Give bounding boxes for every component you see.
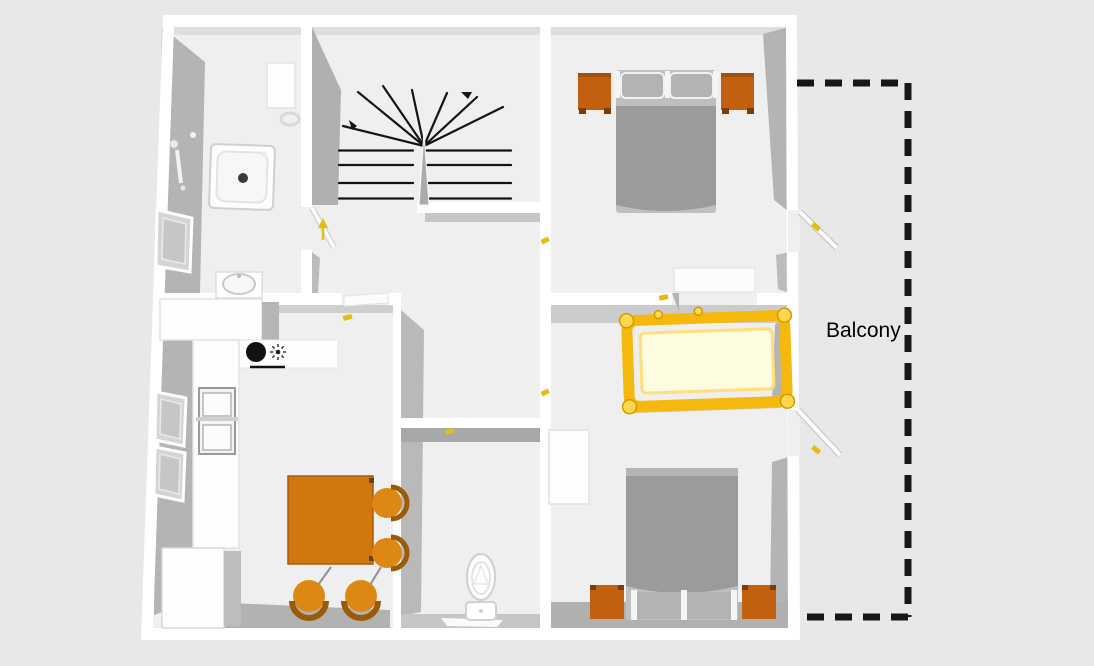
shower <box>209 144 275 210</box>
duvet-fold-highlight <box>616 100 716 106</box>
wc-top-wall-face <box>401 428 541 442</box>
balcony-door-opening-top <box>788 210 800 252</box>
bed-duvet <box>626 468 738 593</box>
wall-central-divider <box>540 27 551 629</box>
dining-chair-right-1 <box>372 487 407 519</box>
nightstand-body <box>590 585 624 619</box>
nightstand-leg <box>742 585 748 590</box>
cooktop <box>246 342 266 362</box>
balcony-label: Balcony <box>826 319 901 342</box>
pillow <box>670 73 713 98</box>
stair-landing-edge <box>417 202 540 213</box>
sink-basin <box>203 393 231 416</box>
chair-seat <box>372 488 402 518</box>
crib-post-knob <box>619 314 633 328</box>
shower-drain <box>238 173 248 183</box>
double-bed-top <box>615 70 718 213</box>
toilet <box>466 554 496 620</box>
nightstand-bottom-right <box>742 585 776 619</box>
bed-pillow-gap <box>681 590 687 620</box>
kitchen-upper-counter <box>160 299 262 340</box>
shower-hose-end <box>181 186 186 191</box>
wall-cabinet <box>267 63 295 108</box>
chair-seat <box>345 580 377 612</box>
nightstand-top-left <box>578 73 611 114</box>
nightstand-body <box>578 73 611 110</box>
pillow <box>637 592 681 619</box>
wall-bedroom-nursery-left <box>551 293 672 305</box>
nightstand-leg <box>579 108 586 114</box>
nightstand-leg <box>590 585 596 590</box>
kitchen-window-1 <box>155 392 186 446</box>
dining-chair-right-2 <box>372 537 407 569</box>
floorplan: Balcony <box>0 0 1094 666</box>
stair-landing-edge-face <box>425 213 540 222</box>
nightstand-top-right <box>721 73 754 114</box>
dining-table <box>288 476 373 564</box>
kitchen-sink <box>196 388 238 454</box>
nightstand-leg <box>770 585 776 590</box>
crib-finial <box>694 307 702 315</box>
toilet-flush-button <box>479 609 483 613</box>
fridge <box>162 548 241 628</box>
nightstand-bottom-left <box>590 585 624 619</box>
wall-kitchen-wc-divider <box>393 293 401 629</box>
nightstand-leg <box>618 585 624 590</box>
double-bed-bottom <box>626 468 738 620</box>
sink-faucet-bar <box>196 417 238 421</box>
crib-post-knob <box>777 308 791 322</box>
crib-finial <box>654 311 662 319</box>
wc-left-wall-face <box>401 310 424 616</box>
chair-seat <box>372 538 402 568</box>
window-glass <box>160 399 181 439</box>
wall-bathroom-divider-upper <box>301 27 312 207</box>
pillow <box>687 592 731 619</box>
table-leg <box>369 478 374 483</box>
pillow <box>621 73 664 98</box>
fridge-body <box>162 548 224 628</box>
washbasin <box>216 272 262 298</box>
kitchen-window-2 <box>154 447 185 501</box>
nightstand-leg <box>722 108 729 114</box>
wall-hook <box>190 132 196 138</box>
crib-post-knob <box>622 399 636 413</box>
nightstand-body <box>721 73 754 110</box>
sink-basin <box>203 425 231 450</box>
nightstand-edge <box>578 73 611 77</box>
top-wall-face <box>174 27 786 35</box>
wall-wc-top <box>393 418 545 428</box>
gas-burner-icon <box>270 344 286 360</box>
crib-post-knob <box>780 394 794 408</box>
bed-pillow-gap <box>631 590 637 620</box>
nightstand-leg <box>747 108 754 114</box>
bed-pillow-gap <box>615 71 620 98</box>
bed-pillow-gap <box>731 590 737 620</box>
shower-corner-fitting <box>261 151 267 157</box>
nightstand-leg <box>604 108 611 114</box>
door-leaf <box>674 268 755 292</box>
nightstand-edge <box>721 73 754 77</box>
window-glass <box>159 454 180 494</box>
wardrobe <box>549 430 589 504</box>
bed-duvet <box>616 100 716 211</box>
balcony-door-opening-bottom <box>788 410 800 456</box>
shower-head <box>170 140 178 148</box>
duvet-fold-highlight <box>626 468 738 476</box>
chair-seat <box>293 580 325 612</box>
bathroom-window <box>156 210 192 272</box>
wall-bedroom-nursery-right <box>757 293 789 305</box>
wall-bathroom-divider-lower <box>301 250 312 295</box>
washbasin-faucet <box>237 274 241 278</box>
burner-center <box>276 350 281 355</box>
nightstand-body <box>742 585 776 619</box>
crib-mattress <box>640 329 774 394</box>
window-glass <box>162 218 186 264</box>
fridge-side-face <box>224 551 241 626</box>
